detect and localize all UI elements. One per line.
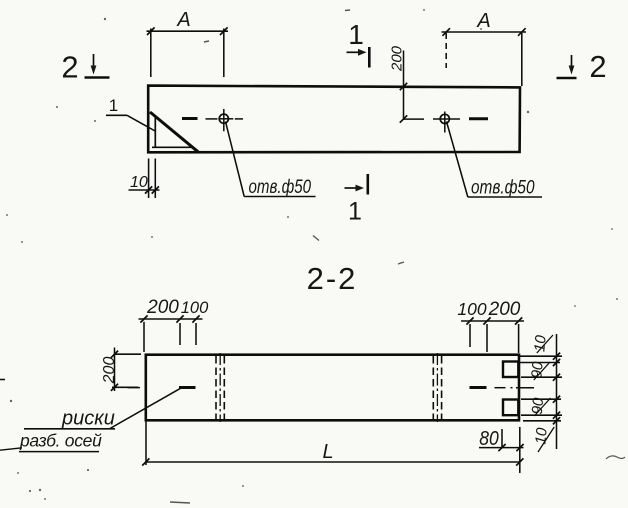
svg-text:разб. осей: разб. осей: [19, 431, 102, 451]
svg-text:1: 1: [109, 96, 118, 115]
svg-text:90: 90: [529, 396, 547, 415]
svg-text:200: 200: [146, 297, 179, 318]
svg-text:1: 1: [348, 198, 362, 226]
svg-text:2-2: 2-2: [307, 261, 358, 296]
svg-text:200: 200: [488, 299, 521, 320]
svg-text:A: A: [176, 9, 190, 31]
svg-text:100: 100: [457, 299, 486, 319]
svg-text:отв.ф50: отв.ф50: [471, 178, 535, 199]
svg-text:отв.ф50: отв.ф50: [249, 177, 312, 198]
svg-text:риски: риски: [61, 408, 115, 430]
svg-text:2: 2: [61, 50, 78, 85]
svg-text:10: 10: [531, 334, 549, 353]
svg-text:10: 10: [130, 174, 148, 191]
svg-text:L: L: [322, 441, 333, 463]
svg-text:200: 200: [389, 45, 406, 72]
svg-text:80: 80: [479, 428, 499, 450]
svg-text:90: 90: [528, 360, 546, 379]
svg-text:200: 200: [101, 357, 118, 385]
svg-text:1: 1: [348, 19, 364, 50]
svg-text:100: 100: [181, 299, 209, 317]
svg-text:2: 2: [589, 49, 606, 84]
svg-text:A: A: [476, 10, 490, 32]
svg-text:10: 10: [532, 426, 550, 445]
